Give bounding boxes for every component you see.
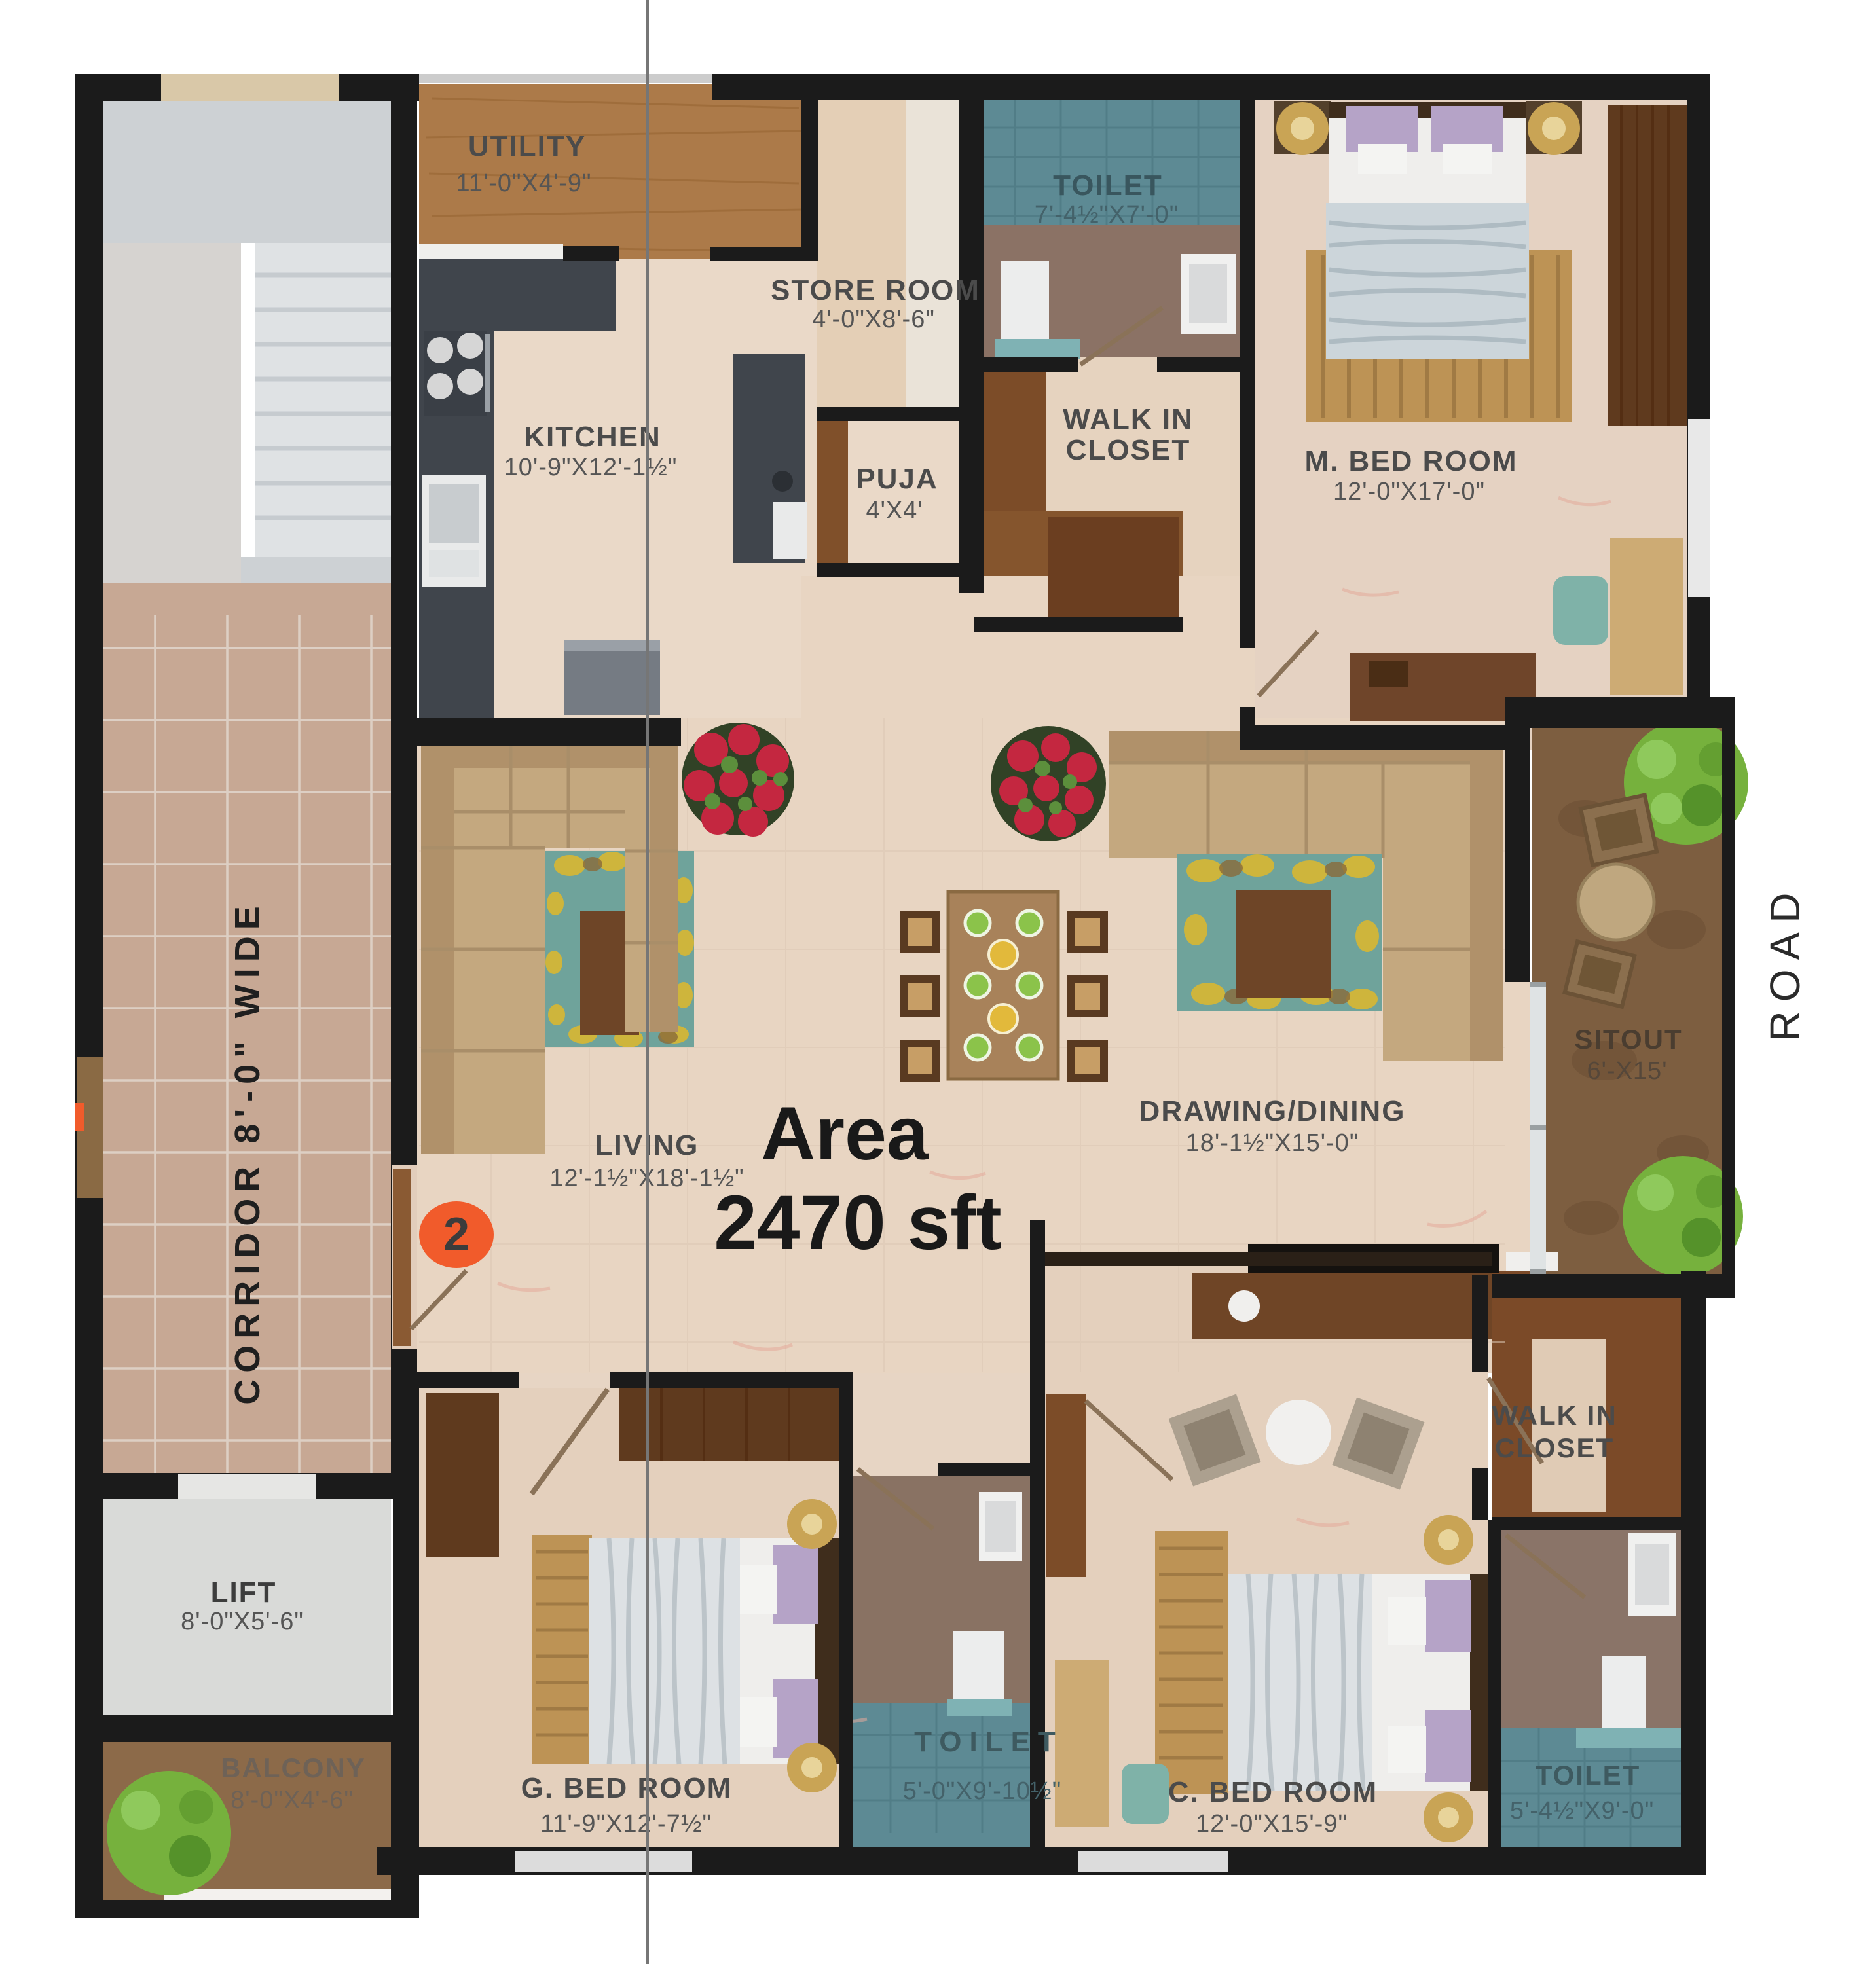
svg-text:10'-9"X12'-1½": 10'-9"X12'-1½" — [504, 454, 678, 481]
svg-text:5'-4½"X9'-0": 5'-4½"X9'-0" — [1510, 1797, 1654, 1825]
svg-text:ROAD: ROAD — [1761, 884, 1809, 1042]
svg-text:8'-0"X5'-6": 8'-0"X5'-6" — [181, 1608, 304, 1635]
svg-text:12'-0"X15'-9": 12'-0"X15'-9" — [1196, 1810, 1348, 1838]
svg-text:TOILET: TOILET — [1053, 170, 1163, 202]
svg-text:CLOSET: CLOSET — [1066, 434, 1190, 466]
svg-text:UTILITY: UTILITY — [468, 130, 586, 162]
svg-text:12'-0"X17'-0": 12'-0"X17'-0" — [1333, 478, 1485, 505]
svg-text:11'-9"X12'-7½": 11'-9"X12'-7½" — [540, 1810, 712, 1838]
svg-text:4'-0"X8'-6": 4'-0"X8'-6" — [812, 306, 935, 333]
svg-text:7'-4½"X7'-0": 7'-4½"X7'-0" — [1035, 201, 1179, 228]
svg-text:2: 2 — [443, 1209, 469, 1261]
svg-text:CORRIDOR 8'-0" WIDE: CORRIDOR 8'-0" WIDE — [228, 900, 267, 1404]
svg-text:G. BED ROOM: G. BED ROOM — [521, 1772, 733, 1804]
svg-text:11'-0"X4'-9": 11'-0"X4'-9" — [456, 170, 592, 197]
svg-text:4'X4': 4'X4' — [866, 497, 923, 524]
svg-text:18'-1½"X15'-0": 18'-1½"X15'-0" — [1186, 1129, 1359, 1157]
svg-text:SITOUT: SITOUT — [1574, 1024, 1682, 1055]
svg-text:Area: Area — [761, 1092, 929, 1176]
svg-text:5'-0"X9'-10½": 5'-0"X9'-10½" — [903, 1777, 1062, 1805]
svg-text:TOILET: TOILET — [914, 1726, 1063, 1758]
svg-text:6'-X15': 6'-X15' — [1587, 1057, 1668, 1085]
svg-text:C. BED ROOM: C. BED ROOM — [1168, 1776, 1378, 1808]
svg-text:STORE ROOM: STORE ROOM — [771, 274, 980, 306]
svg-text:2470 sft: 2470 sft — [714, 1180, 1002, 1266]
svg-text:M. BED ROOM: M. BED ROOM — [1304, 445, 1517, 477]
svg-text:CLOSET: CLOSET — [1495, 1432, 1614, 1463]
svg-text:LIFT: LIFT — [211, 1576, 277, 1609]
svg-text:DRAWING/DINING: DRAWING/DINING — [1139, 1095, 1406, 1127]
svg-text:8'-0"X4'-6": 8'-0"X4'-6" — [230, 1787, 354, 1814]
svg-text:PUJA: PUJA — [856, 463, 938, 495]
svg-text:TOILET: TOILET — [1536, 1760, 1641, 1791]
svg-text:BALCONY: BALCONY — [221, 1753, 366, 1783]
svg-text:KITCHEN: KITCHEN — [524, 421, 661, 453]
svg-text:WALK IN: WALK IN — [1063, 403, 1194, 435]
svg-text:WALK IN: WALK IN — [1492, 1400, 1617, 1430]
